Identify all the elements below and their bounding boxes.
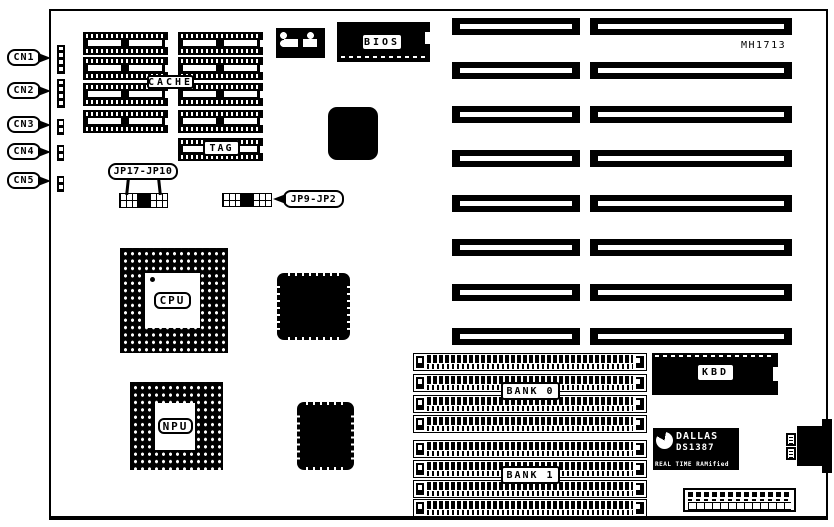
- cn1-callout-label: CN1: [13, 52, 34, 63]
- kbd-controller-chip: KBD: [652, 353, 778, 395]
- simm-socket-bank1-4: [413, 499, 647, 517]
- simm-socket-bank0-4: [413, 415, 647, 433]
- cn4-header: [57, 145, 64, 161]
- npu-label-text: NPU: [163, 420, 189, 433]
- rtc-brand-text: DALLAS: [676, 431, 718, 442]
- bios-dashed-line: [341, 56, 426, 58]
- isa-slot-3-long: [590, 106, 792, 123]
- qfp-chip-top: [328, 107, 378, 160]
- cn4-callout: CN4: [7, 143, 41, 160]
- tag-label-text: TAG: [209, 143, 233, 154]
- qfp-chip-low: [297, 402, 354, 470]
- cn5-header: [57, 176, 64, 192]
- callout-pointer-icon: [38, 147, 51, 157]
- jp17-jp10-callout: JP17-JP10: [108, 163, 178, 180]
- tag-label: TAG: [203, 140, 240, 156]
- cn3-header: [57, 119, 64, 135]
- jp9-jp2-callout: JP9-JP2: [283, 190, 344, 208]
- cpu-label: CPU: [154, 292, 191, 309]
- keyboard-din-connector-tail: [822, 419, 832, 473]
- isa-slot-4-short: [452, 150, 580, 167]
- cpu-socket: CPU: [120, 248, 228, 353]
- isa-slot-4-long: [590, 150, 792, 167]
- isa-slot-6-short: [452, 239, 580, 256]
- bank1-label-text: BANK 1: [506, 470, 554, 481]
- keyboard-din-connector: [797, 426, 823, 466]
- isa-slot-1-short: [452, 18, 580, 35]
- bios-label: BIOS: [362, 34, 402, 50]
- jumper-block-jp9-jp2: [222, 193, 272, 207]
- isa-slot-7-short: [452, 284, 580, 301]
- cache-socket: [178, 32, 263, 55]
- cache-label-text: CACHE: [148, 77, 193, 88]
- kbd-label: KBD: [697, 364, 734, 381]
- isa-slot-8-short: [452, 328, 580, 345]
- npu-label: NPU: [158, 418, 193, 434]
- cn5-callout-label: CN5: [13, 175, 34, 186]
- jumper-block-jp17-jp10: [119, 193, 168, 208]
- kbd-label-text: KBD: [702, 367, 729, 378]
- isa-slot-7-long: [590, 284, 792, 301]
- callout-pointer-icon: [38, 86, 51, 96]
- dallas-clock-icon: [656, 432, 673, 449]
- isa-slot-3-short: [452, 106, 580, 123]
- cache-socket: [178, 110, 263, 133]
- isa-slot-2-short: [452, 62, 580, 79]
- npu-socket: NPU: [130, 382, 223, 470]
- cn2-header: [57, 79, 65, 108]
- cn2-callout: CN2: [7, 82, 41, 99]
- bank0-label: BANK 0: [501, 382, 560, 400]
- power-connector: [683, 488, 796, 512]
- rtc-tagline-text: REAL TIME RAMified: [655, 461, 737, 468]
- jp17-jp10-label: JP17-JP10: [114, 166, 173, 177]
- cn2-callout-label: CN2: [13, 85, 34, 96]
- aux-plug-1: [786, 433, 796, 446]
- jp9-jp2-label: JP9-JP2: [291, 194, 337, 205]
- callout-pointer-icon: [38, 176, 51, 186]
- isa-slot-8-long: [590, 328, 792, 345]
- callout-pointer-icon: [38, 120, 51, 130]
- cache-socket: [83, 32, 168, 55]
- rtc-chip: DALLAS DS1387 REAL TIME RAMified: [653, 428, 739, 470]
- cn4-callout-label: CN4: [13, 146, 34, 157]
- cache-label: CACHE: [147, 75, 194, 89]
- cn1-header: [57, 45, 65, 74]
- isa-slot-6-long: [590, 239, 792, 256]
- pin1-marker: [150, 277, 155, 282]
- cn1-callout: CN1: [7, 49, 41, 66]
- simm-socket-bank0-1: [413, 353, 647, 371]
- component-4hole: [276, 28, 325, 58]
- bios-notch: [425, 32, 430, 44]
- cn5-callout: CN5: [7, 172, 41, 189]
- bios-label-text: BIOS: [364, 37, 400, 48]
- kbd-dashed-line: [655, 355, 775, 357]
- cn3-callout-label: CN3: [13, 119, 34, 130]
- cpu-label-text: CPU: [160, 294, 186, 307]
- isa-slot-5-short: [452, 195, 580, 212]
- bank1-label: BANK 1: [501, 466, 560, 484]
- callout-pointer-icon: [38, 53, 51, 63]
- isa-slot-2-long: [590, 62, 792, 79]
- simm-socket-bank1-1: [413, 440, 647, 458]
- bios-chip: BIOS: [337, 22, 430, 62]
- cache-socket: [83, 110, 168, 133]
- qfp-chip-mid: [277, 273, 350, 340]
- isa-slot-5-long: [590, 195, 792, 212]
- kbd-notch: [773, 367, 778, 381]
- board-model-text: MH1713: [741, 40, 786, 51]
- callout-pointer-icon: [273, 194, 286, 204]
- motherboard-diagram: CN1 CN2 CN3 CN4 CN5 CACHE TAG JP17-JP10: [0, 0, 834, 527]
- rtc-part-text: DS1387: [676, 443, 715, 453]
- aux-plug-2: [786, 447, 796, 460]
- cn3-callout: CN3: [7, 116, 41, 133]
- bank0-label-text: BANK 0: [506, 386, 554, 397]
- isa-slot-1-long: [590, 18, 792, 35]
